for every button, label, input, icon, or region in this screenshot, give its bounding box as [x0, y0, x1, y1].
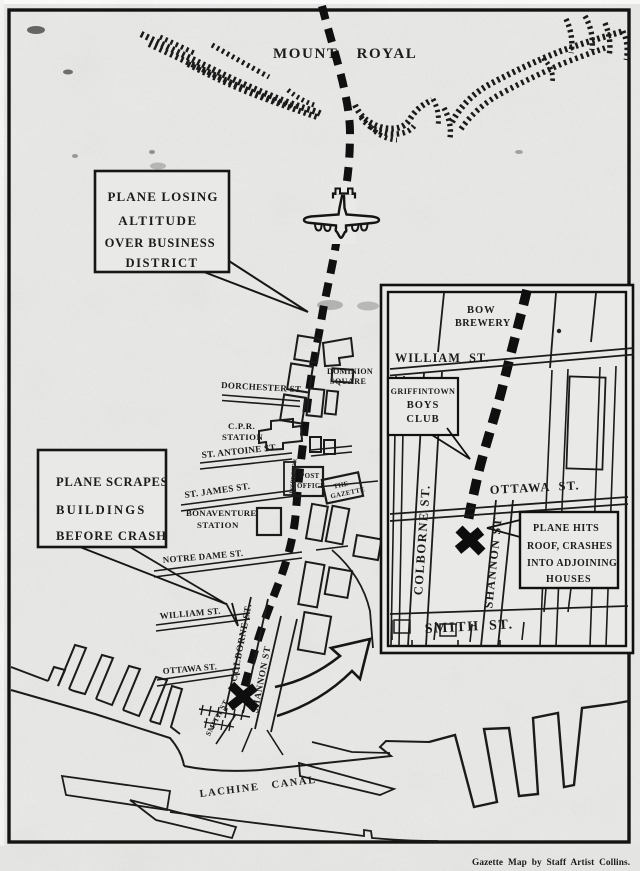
svg-text:BUILDINGS: BUILDINGS [56, 503, 147, 517]
svg-text:WILLIAM ST.: WILLIAM ST. [395, 351, 489, 365]
svg-text:POST: POST [300, 472, 320, 480]
svg-text:ROOF, CRASHES: ROOF, CRASHES [527, 541, 612, 552]
svg-text:PLANE SCRAPES: PLANE SCRAPES [56, 475, 168, 489]
svg-text:BONAVENTURE: BONAVENTURE [186, 508, 257, 518]
svg-text:BOYS: BOYS [407, 400, 440, 411]
svg-text:C.P.R.: C.P.R. [228, 421, 255, 431]
svg-text:BREWERY: BREWERY [455, 318, 511, 329]
svg-text:GRIFFINTOWN: GRIFFINTOWN [391, 387, 456, 396]
svg-text:PLANE LOSING: PLANE LOSING [107, 189, 218, 204]
svg-text:SQUARE: SQUARE [330, 377, 366, 386]
svg-text:DISTRICT: DISTRICT [126, 256, 199, 270]
svg-text:MOUNT ROYAL: MOUNT ROYAL [273, 46, 417, 62]
svg-text:HOUSES: HOUSES [546, 574, 591, 585]
svg-text:STATION: STATION [222, 432, 263, 442]
svg-text:BOW: BOW [467, 305, 496, 316]
svg-text:CLUB: CLUB [406, 414, 439, 425]
svg-text:Gazette Map by Staff Artist Co: Gazette Map by Staff Artist Collins. [472, 858, 630, 868]
svg-text:INTO ADJOINING: INTO ADJOINING [527, 558, 617, 569]
svg-text:STATION: STATION [197, 520, 239, 530]
svg-text:PLANE HITS: PLANE HITS [533, 523, 599, 534]
svg-text:BEFORE CRASH: BEFORE CRASH [56, 529, 167, 543]
svg-text:DOMINION: DOMINION [327, 367, 373, 376]
svg-text:OVER BUSINESS: OVER BUSINESS [105, 236, 216, 250]
svg-text:ALTITUDE: ALTITUDE [118, 213, 198, 228]
